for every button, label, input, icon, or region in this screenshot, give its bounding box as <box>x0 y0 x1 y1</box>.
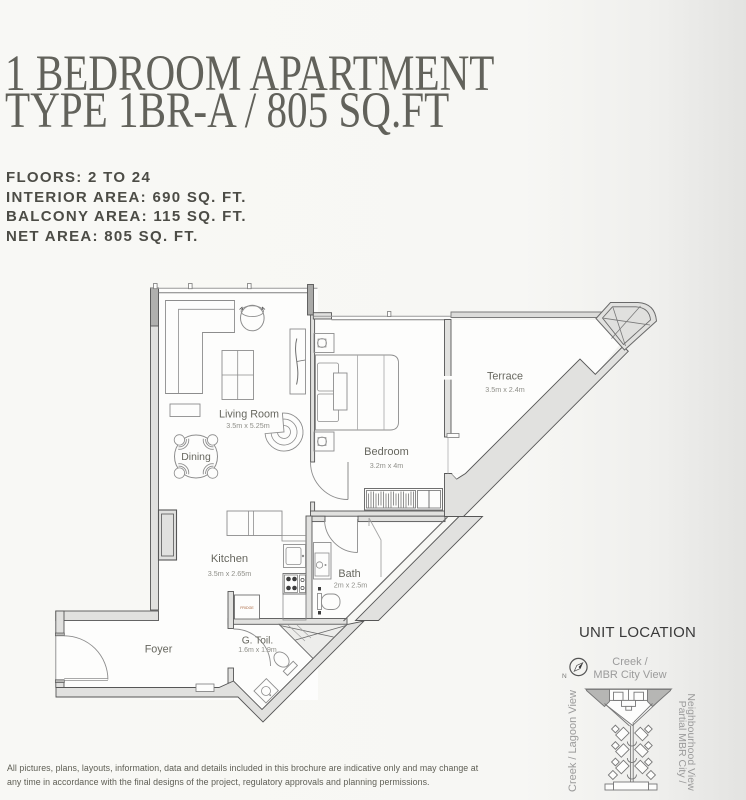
svg-text:Foyer: Foyer <box>145 644 173 656</box>
svg-text:2m x 2.5m: 2m x 2.5m <box>334 581 368 590</box>
svg-text:Kitchen: Kitchen <box>211 553 248 565</box>
svg-text:Dining: Dining <box>181 452 211 463</box>
svg-text:Living Room: Living Room <box>219 409 279 421</box>
svg-text:3.5m x 5.25m: 3.5m x 5.25m <box>226 421 270 430</box>
svg-text:3.2m x 4m: 3.2m x 4m <box>370 461 404 470</box>
svg-text:Bedroom: Bedroom <box>364 446 409 458</box>
svg-text:Terrace: Terrace <box>487 371 523 383</box>
svg-text:3.5m x 2.65m: 3.5m x 2.65m <box>208 569 252 578</box>
svg-text:1.6m x 1.9m: 1.6m x 1.9m <box>238 647 277 654</box>
svg-text:FRIDGE: FRIDGE <box>240 606 254 610</box>
svg-text:3.5m x 2.4m: 3.5m x 2.4m <box>485 385 525 394</box>
svg-text:Bath: Bath <box>338 568 360 580</box>
svg-text:G. Toil.: G. Toil. <box>242 636 274 647</box>
